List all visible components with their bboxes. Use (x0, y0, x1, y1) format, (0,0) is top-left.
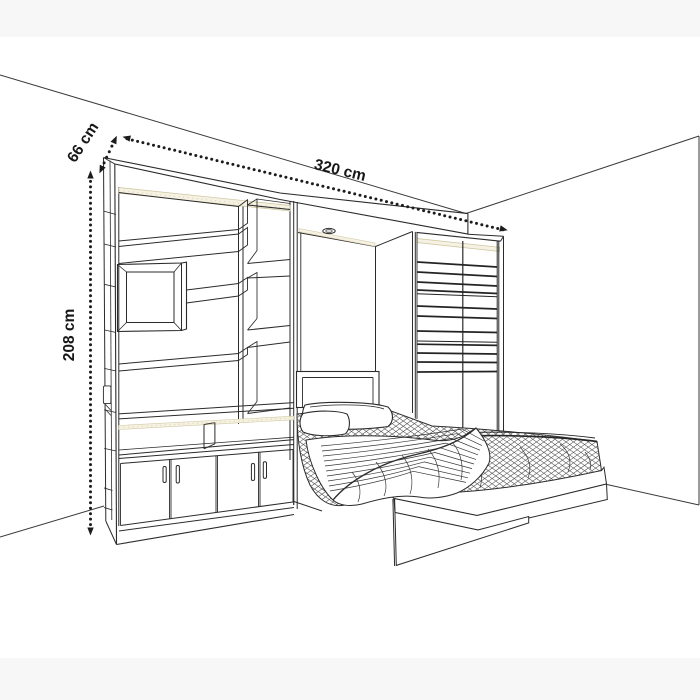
svg-text:208 cm: 208 cm (61, 309, 78, 362)
